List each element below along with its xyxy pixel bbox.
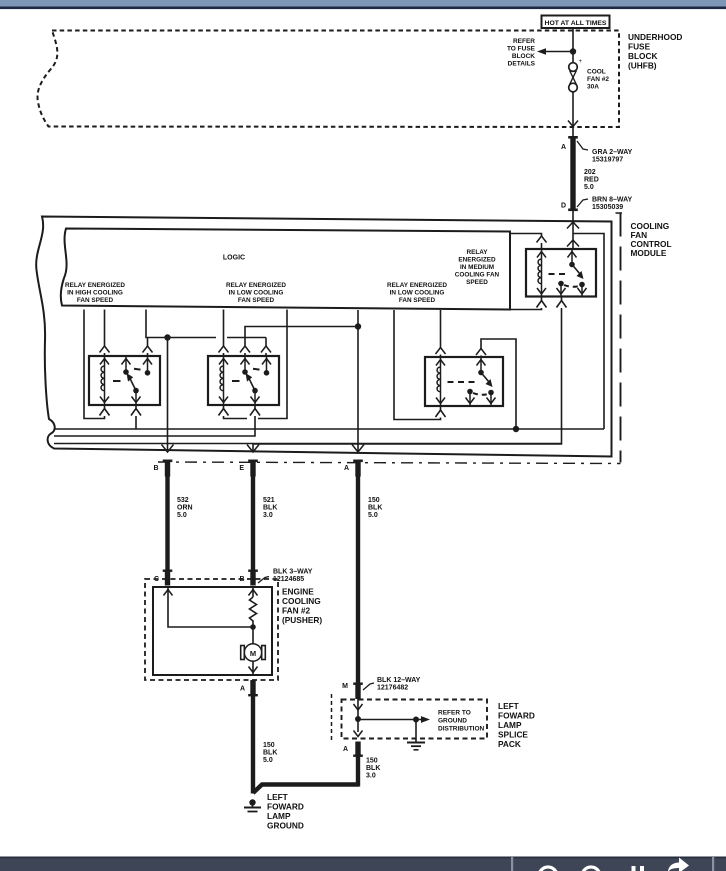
svg-text:3.0: 3.0 (263, 512, 273, 519)
svg-text:BLK: BLK (368, 505, 382, 512)
svg-text:12124685: 12124685 (273, 576, 304, 583)
svg-text:150: 150 (366, 758, 378, 765)
svg-text:ENERGIZED: ENERGIZED (458, 257, 496, 264)
svg-text:5.0: 5.0 (368, 512, 378, 519)
svg-text:SPLICE: SPLICE (498, 730, 528, 740)
svg-text:GROUND: GROUND (267, 821, 304, 831)
svg-text:FOWARD: FOWARD (498, 711, 535, 721)
svg-text:B: B (153, 465, 158, 472)
svg-text:GROUND: GROUND (438, 718, 467, 725)
svg-text:FUSE: FUSE (628, 42, 651, 52)
svg-text:5.0: 5.0 (584, 184, 594, 191)
svg-text:M: M (250, 649, 256, 658)
svg-text:SPEED: SPEED (466, 279, 488, 286)
svg-text:D: D (561, 203, 566, 210)
svg-text:GRA 2–WAY: GRA 2–WAY (592, 149, 633, 156)
svg-text:3.0: 3.0 (366, 773, 376, 780)
svg-text:HOT AT ALL TIMES: HOT AT ALL TIMES (545, 20, 607, 27)
svg-text:BLK 3–WAY: BLK 3–WAY (273, 569, 313, 576)
svg-text:A: A (561, 144, 566, 151)
svg-text:BLK 12–WAY: BLK 12–WAY (377, 677, 421, 684)
svg-text:IN LOW COOLING: IN LOW COOLING (229, 290, 284, 297)
svg-text:FAN SPEED: FAN SPEED (399, 297, 436, 304)
svg-text:15319797: 15319797 (592, 157, 623, 164)
svg-text:FOWARD: FOWARD (267, 802, 304, 812)
svg-text:UNDERHOOD: UNDERHOOD (628, 32, 682, 42)
svg-text:COOLING FAN: COOLING FAN (455, 272, 500, 279)
svg-text:202: 202 (584, 169, 596, 176)
svg-text:ENGINE: ENGINE (282, 587, 314, 597)
svg-text:IN LOW COOLING: IN LOW COOLING (390, 290, 445, 297)
svg-text:BLK: BLK (263, 505, 277, 512)
svg-text:+: + (579, 59, 583, 65)
svg-text:M: M (342, 683, 348, 690)
svg-text:RELAY ENERGIZED: RELAY ENERGIZED (387, 282, 447, 289)
svg-text:LAMP: LAMP (267, 811, 291, 821)
svg-text:FAN SPEED: FAN SPEED (77, 297, 114, 304)
svg-text:FAN #2: FAN #2 (587, 76, 609, 83)
svg-text:COOL: COOL (587, 69, 606, 76)
svg-text:5.0: 5.0 (177, 512, 187, 519)
svg-text:IN HIGH COOLING: IN HIGH COOLING (67, 290, 123, 297)
svg-text:LEFT: LEFT (498, 701, 519, 711)
svg-text:MODULE: MODULE (631, 248, 667, 258)
svg-text:A: A (343, 746, 348, 753)
svg-text:LAMP: LAMP (498, 720, 522, 730)
svg-text:A: A (344, 465, 349, 472)
svg-text:RELAY ENERGIZED: RELAY ENERGIZED (226, 282, 286, 289)
svg-text:FAN #2: FAN #2 (282, 606, 311, 616)
svg-text:(UHFB): (UHFB) (628, 61, 657, 71)
svg-text:BLK: BLK (366, 765, 380, 772)
svg-text:DISTRIBUTION: DISTRIBUTION (438, 726, 485, 733)
svg-text:REFER: REFER (513, 38, 535, 45)
svg-text:5.0: 5.0 (263, 757, 273, 764)
svg-text:RED: RED (584, 176, 599, 183)
svg-text:BLK: BLK (263, 750, 277, 757)
svg-text:RELAY: RELAY (466, 249, 488, 256)
svg-text:BRN 8–WAY: BRN 8–WAY (592, 197, 633, 204)
svg-text:BLOCK: BLOCK (512, 53, 535, 60)
svg-text:532: 532 (177, 497, 189, 504)
svg-text:DETAILS: DETAILS (508, 61, 536, 68)
svg-text:12176482: 12176482 (377, 685, 408, 692)
svg-text:150: 150 (263, 742, 275, 749)
svg-text:IN MEDIUM: IN MEDIUM (460, 264, 494, 271)
svg-text:150: 150 (368, 497, 380, 504)
svg-text:BLOCK: BLOCK (628, 51, 658, 61)
svg-text:521: 521 (263, 497, 275, 504)
svg-text:15305039: 15305039 (592, 204, 623, 211)
svg-text:(PUSHER): (PUSHER) (282, 615, 322, 625)
svg-text:E: E (239, 465, 244, 472)
svg-text:FAN SPEED: FAN SPEED (238, 297, 275, 304)
svg-text:PACK: PACK (498, 739, 521, 749)
svg-text:COOLING: COOLING (282, 596, 321, 606)
svg-text:30A: 30A (587, 83, 599, 90)
svg-text:LOGIC: LOGIC (223, 255, 245, 262)
svg-text:A: A (240, 686, 245, 693)
svg-text:RELAY ENERGIZED: RELAY ENERGIZED (65, 282, 125, 289)
svg-text:TO FUSE: TO FUSE (507, 46, 536, 53)
svg-text:REFER TO: REFER TO (438, 710, 471, 717)
svg-text:ORN: ORN (177, 505, 193, 512)
svg-text:LEFT: LEFT (267, 792, 288, 802)
